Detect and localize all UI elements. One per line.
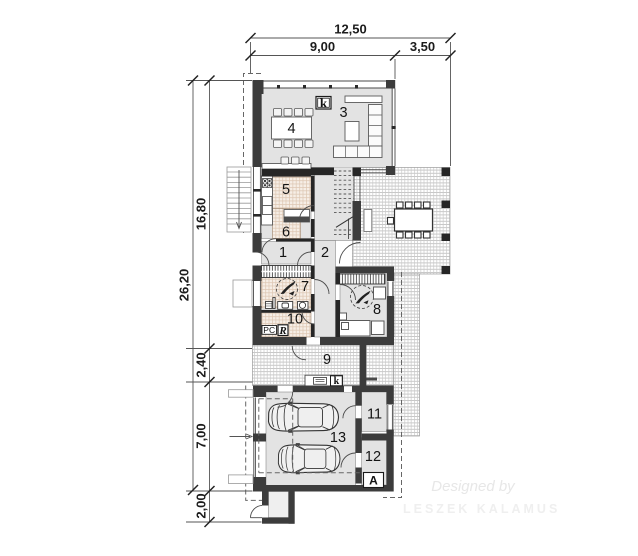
svg-text:2,40: 2,40 — [194, 352, 209, 377]
svg-text:7,00: 7,00 — [194, 423, 209, 448]
svg-text:2: 2 — [321, 245, 329, 261]
svg-text:2,00: 2,00 — [194, 493, 209, 518]
svg-text:12,50: 12,50 — [334, 22, 367, 37]
svg-text:8: 8 — [373, 302, 381, 318]
svg-text:3: 3 — [339, 105, 347, 121]
svg-text:Designed by: Designed by — [431, 478, 516, 495]
svg-text:13: 13 — [330, 430, 346, 446]
svg-text:5: 5 — [282, 182, 290, 198]
svg-text:PC: PC — [263, 325, 275, 335]
svg-text:9: 9 — [323, 352, 331, 368]
svg-text:10: 10 — [287, 312, 303, 328]
svg-text:11: 11 — [367, 407, 382, 423]
svg-text:LESZEK KALAMUS: LESZEK KALAMUS — [403, 502, 560, 516]
svg-text:6: 6 — [282, 225, 290, 241]
svg-text:3,50: 3,50 — [410, 39, 435, 54]
svg-text:9,00: 9,00 — [310, 39, 335, 54]
svg-text:4: 4 — [287, 121, 295, 137]
svg-text:A: A — [369, 474, 378, 488]
svg-text:1: 1 — [279, 245, 287, 261]
svg-text:R: R — [278, 325, 286, 337]
svg-text:7: 7 — [301, 279, 309, 295]
svg-text:26,20: 26,20 — [177, 269, 192, 302]
svg-text:16,80: 16,80 — [194, 198, 209, 231]
svg-text:k: k — [334, 376, 340, 387]
svg-text:12: 12 — [365, 449, 381, 465]
svg-text:k: k — [320, 96, 328, 111]
